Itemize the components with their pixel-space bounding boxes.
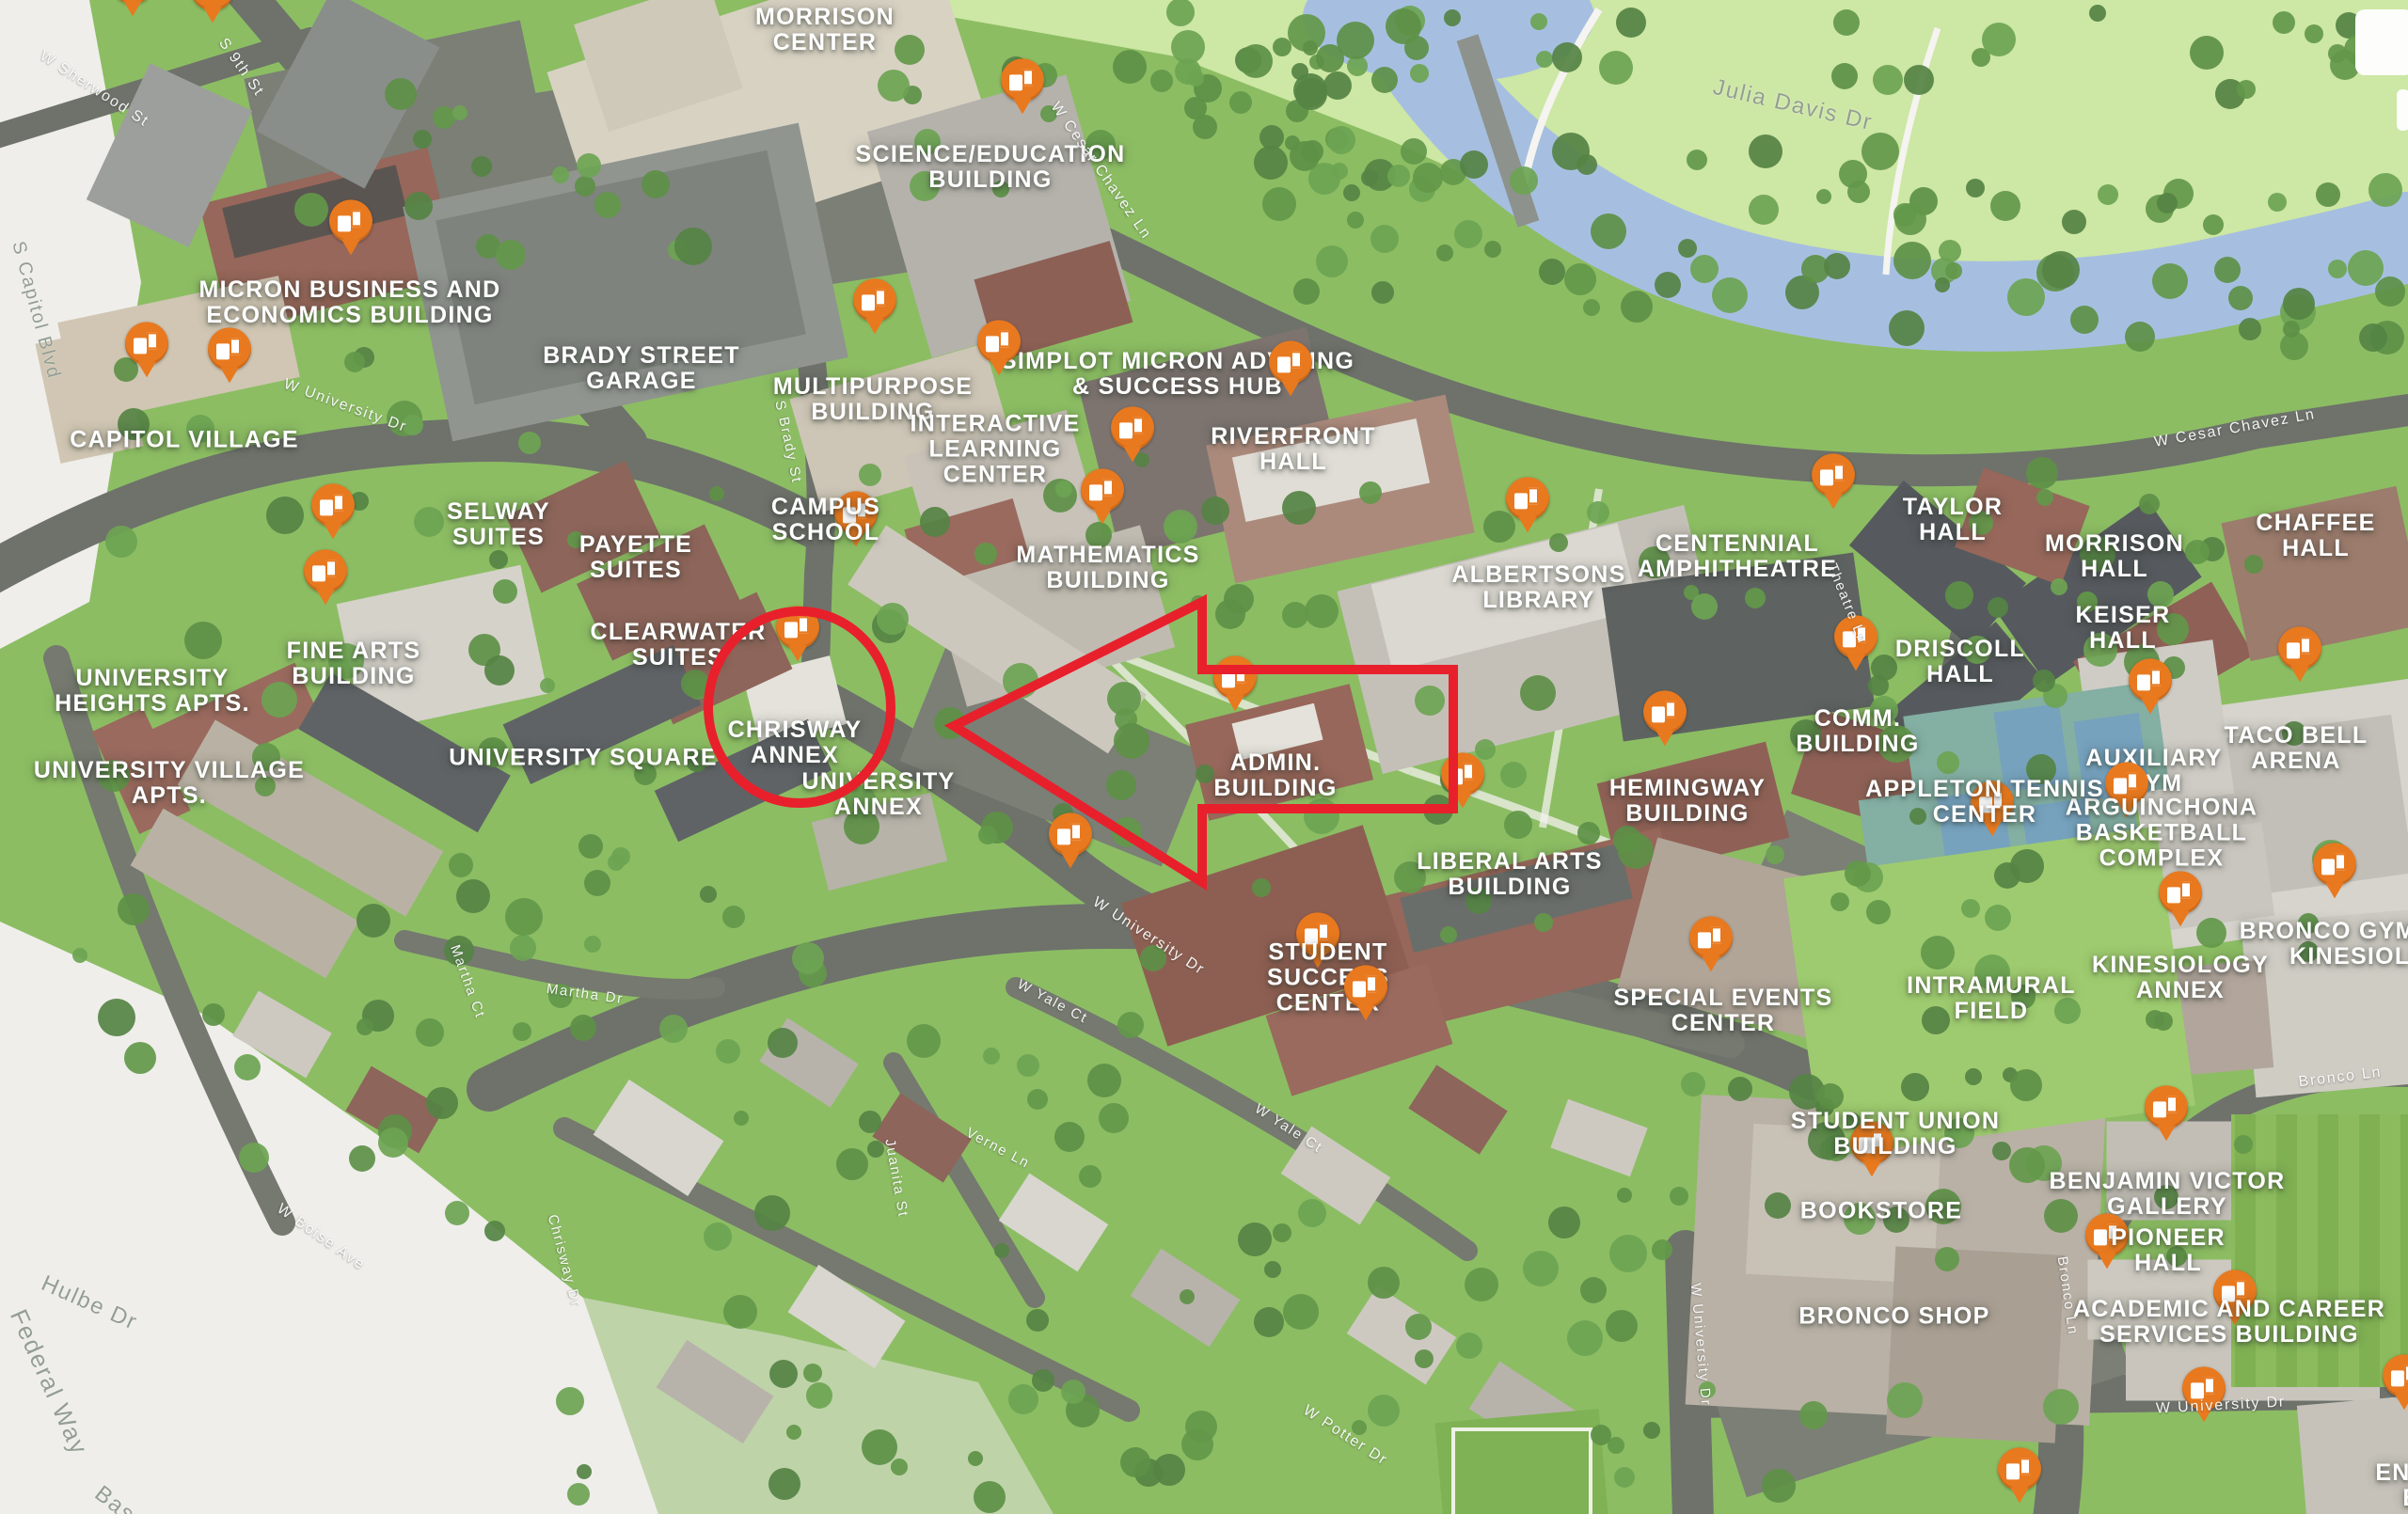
red-arrow-annotation: [954, 602, 1453, 882]
campus-map[interactable]: MORRISON CENTERSCIENCE/EDUCATION BUILDIN…: [0, 0, 2408, 1514]
annotation-overlay: [0, 0, 2408, 1514]
red-circle-annotation: [708, 611, 891, 803]
